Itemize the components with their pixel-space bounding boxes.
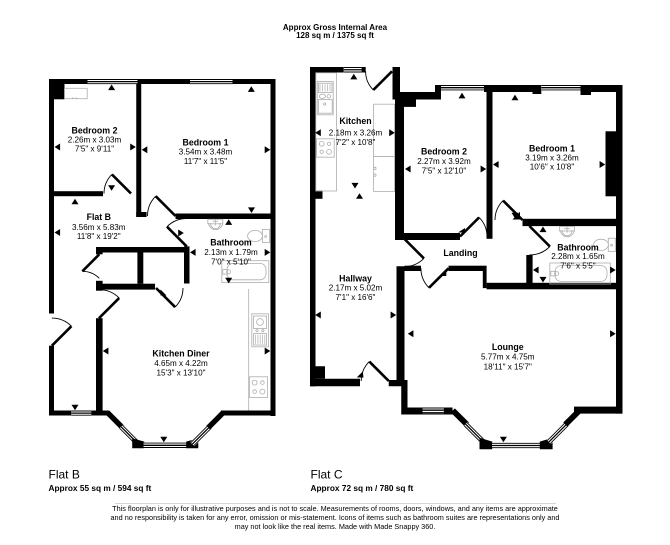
svg-text:may not look like the real ite: may not look like the real items. Made w… (235, 522, 436, 531)
svg-text:7'5" x 9'11": 7'5" x 9'11" (75, 145, 114, 154)
svg-text:2.28m x 1.65m: 2.28m x 1.65m (551, 252, 605, 261)
svg-text:Bathroom: Bathroom (210, 238, 252, 248)
svg-text:Bathroom: Bathroom (557, 242, 599, 252)
svg-text:Kitchen: Kitchen (339, 116, 371, 126)
svg-text:18'11" x 15'7": 18'11" x 15'7" (484, 362, 532, 371)
svg-text:Kitchen Diner: Kitchen Diner (152, 349, 210, 359)
svg-text:Hallway: Hallway (339, 274, 372, 284)
svg-text:7'0" x 5'10": 7'0" x 5'10" (211, 258, 251, 267)
svg-text:Lounge: Lounge (492, 342, 524, 352)
svg-text:128 sq m / 1375 sq ft: 128 sq m / 1375 sq ft (296, 31, 374, 40)
svg-text:11'8" x 19'2": 11'8" x 19'2" (77, 232, 121, 241)
svg-text:This floorplan is only for ill: This floorplan is only for illustrative … (112, 504, 558, 513)
svg-text:Bedroom 2: Bedroom 2 (421, 147, 467, 157)
svg-text:2.18m x 3.26m: 2.18m x 3.26m (329, 128, 383, 137)
svg-text:Bedroom 2: Bedroom 2 (72, 126, 118, 136)
svg-text:7'5" x 12'10": 7'5" x 12'10" (422, 166, 467, 175)
svg-text:2.26m x 3.03m: 2.26m x 3.03m (68, 135, 122, 144)
svg-text:2.27m x 3.92m: 2.27m x 3.92m (417, 157, 471, 166)
svg-text:Approx 55 sq m / 594 sq ft: Approx 55 sq m / 594 sq ft (49, 483, 152, 493)
svg-text:15'3" x 13'10": 15'3" x 13'10" (157, 368, 206, 377)
svg-text:7'6" x 5'5": 7'6" x 5'5" (560, 262, 596, 271)
svg-text:Flat B: Flat B (87, 212, 111, 222)
svg-text:Bedroom 1: Bedroom 1 (529, 144, 575, 154)
svg-text:4.65m x 4.22m: 4.65m x 4.22m (154, 359, 208, 368)
svg-text:5.77m x 4.75m: 5.77m x 4.75m (481, 353, 535, 362)
svg-text:3.54m x 3.48m: 3.54m x 3.48m (179, 148, 233, 157)
svg-text:2.13m x 1.79m: 2.13m x 1.79m (204, 248, 258, 257)
svg-text:7'2" x 10'8": 7'2" x 10'8" (336, 138, 376, 147)
svg-text:Flat C: Flat C (311, 468, 343, 482)
svg-text:3.56m x 5.83m: 3.56m x 5.83m (72, 223, 126, 232)
svg-text:Bedroom 1: Bedroom 1 (183, 138, 229, 148)
svg-text:2.17m x 5.02m: 2.17m x 5.02m (329, 284, 383, 293)
svg-text:Landing: Landing (443, 248, 477, 258)
svg-text:Flat B: Flat B (49, 468, 80, 482)
svg-text:11'7" x 11'5": 11'7" x 11'5" (184, 157, 227, 166)
svg-text:Approx 72 sq m / 780 sq ft: Approx 72 sq m / 780 sq ft (311, 483, 414, 493)
svg-text:and no responsibility is taken: and no responsibility is taken for any e… (111, 513, 560, 522)
svg-text:7'1" x 16'6": 7'1" x 16'6" (336, 293, 376, 302)
svg-text:10'6" x 10'8": 10'6" x 10'8" (530, 163, 575, 172)
svg-text:3.19m x 3.26m: 3.19m x 3.26m (525, 153, 579, 162)
